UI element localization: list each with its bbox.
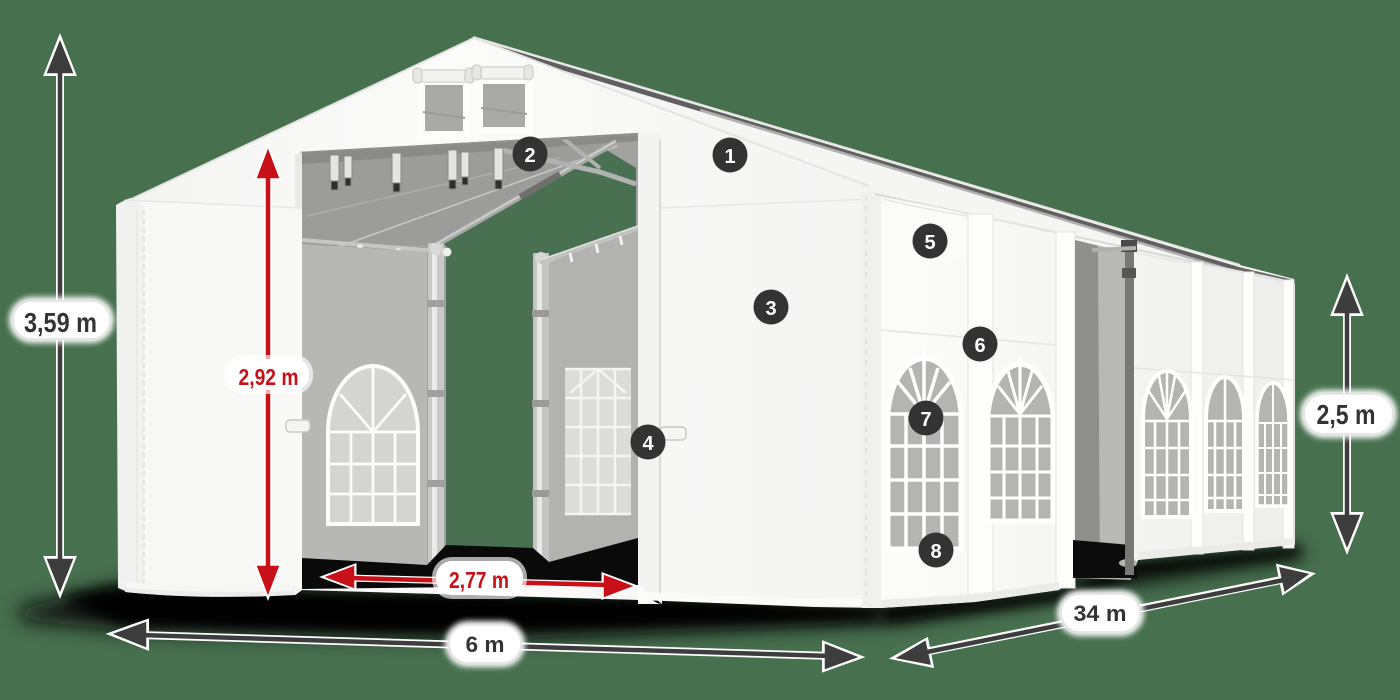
svg-text:6: 6	[974, 335, 985, 357]
svg-text:8: 8	[930, 541, 941, 563]
svg-text:2: 2	[524, 145, 535, 167]
svg-text:7: 7	[920, 409, 931, 431]
svg-text:4: 4	[642, 433, 654, 455]
svg-text:2,5 m: 2,5 m	[1317, 399, 1376, 430]
svg-text:34 m: 34 m	[1074, 601, 1127, 626]
svg-text:3,59 m: 3,59 m	[24, 307, 97, 338]
svg-text:1: 1	[724, 146, 735, 168]
svg-text:2,77 m: 2,77 m	[449, 567, 509, 593]
svg-text:3: 3	[765, 298, 776, 320]
svg-text:6 m: 6 m	[466, 632, 505, 657]
svg-text:5: 5	[924, 232, 935, 254]
svg-text:2,92 m: 2,92 m	[239, 364, 299, 390]
